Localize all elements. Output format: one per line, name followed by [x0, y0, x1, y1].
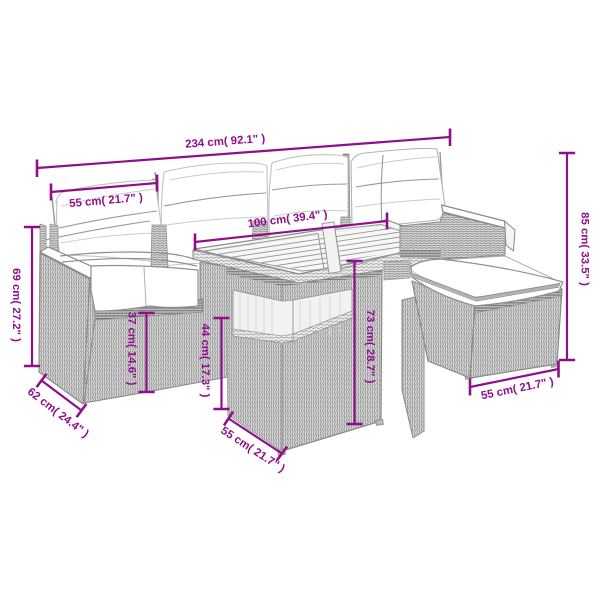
- svg-text:69 cm( 27.2" ): 69 cm( 27.2" ): [10, 268, 22, 342]
- svg-text:85 cm( 33.5" ): 85 cm( 33.5" ): [579, 212, 591, 286]
- svg-text:73 cm( 28.7" ): 73 cm( 28.7" ): [364, 310, 376, 384]
- svg-text:44 cm( 17.3" ): 44 cm( 17.3" ): [199, 324, 211, 398]
- svg-text:37 cm( 14.6" ): 37 cm( 14.6" ): [126, 312, 138, 386]
